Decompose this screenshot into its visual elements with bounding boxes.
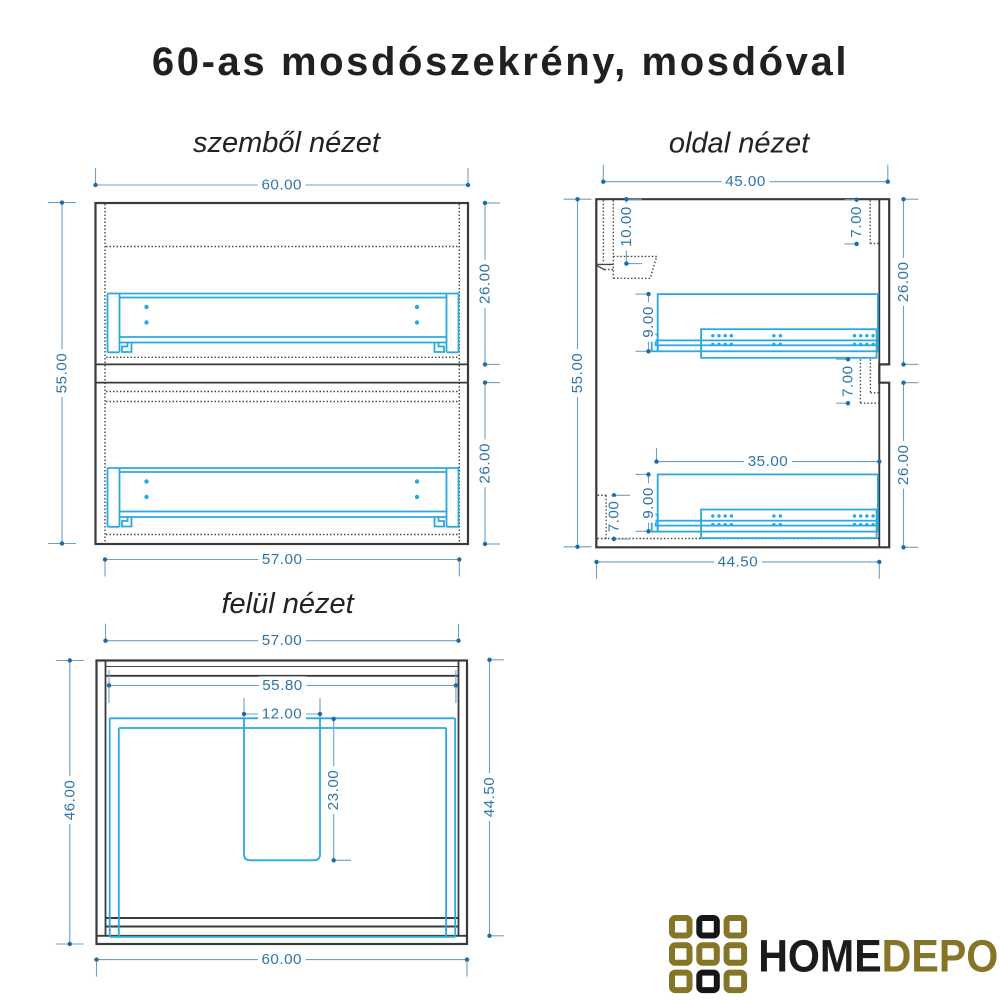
- svg-text:7.00: 7.00: [848, 206, 865, 238]
- svg-text:7.00: 7.00: [840, 365, 857, 397]
- svg-text:26.00: 26.00: [895, 445, 912, 486]
- svg-text:57.00: 57.00: [262, 632, 303, 649]
- svg-text:HOMEDEPO: HOMEDEPO: [758, 932, 998, 982]
- svg-text:45.00: 45.00: [725, 173, 766, 190]
- svg-text:55.00: 55.00: [54, 353, 71, 394]
- svg-text:7.00: 7.00: [605, 501, 622, 533]
- svg-text:60-as mosdószekrény, mosdóval: 60-as mosdószekrény, mosdóval: [152, 40, 849, 84]
- svg-text:55.00: 55.00: [569, 353, 586, 394]
- svg-text:szemből nézet: szemből nézet: [193, 127, 382, 159]
- svg-text:9.00: 9.00: [640, 487, 657, 519]
- svg-text:44.50: 44.50: [481, 777, 498, 818]
- svg-text:60.00: 60.00: [261, 951, 302, 968]
- svg-text:26.00: 26.00: [895, 262, 912, 303]
- svg-text:60.00: 60.00: [261, 177, 302, 194]
- svg-text:12.00: 12.00: [262, 706, 303, 723]
- svg-text:10.00: 10.00: [618, 206, 635, 247]
- svg-text:57.00: 57.00: [262, 551, 303, 568]
- svg-text:35.00: 35.00: [748, 453, 789, 470]
- svg-text:46.00: 46.00: [61, 780, 78, 821]
- svg-text:9.00: 9.00: [640, 306, 657, 338]
- svg-text:26.00: 26.00: [477, 443, 494, 484]
- svg-text:55.80: 55.80: [262, 677, 303, 694]
- svg-text:44.50: 44.50: [718, 553, 759, 570]
- svg-text:felül nézet: felül nézet: [221, 588, 355, 620]
- svg-text:26.00: 26.00: [477, 263, 494, 304]
- svg-text:23.00: 23.00: [325, 770, 342, 811]
- svg-text:oldal nézet: oldal nézet: [669, 128, 811, 160]
